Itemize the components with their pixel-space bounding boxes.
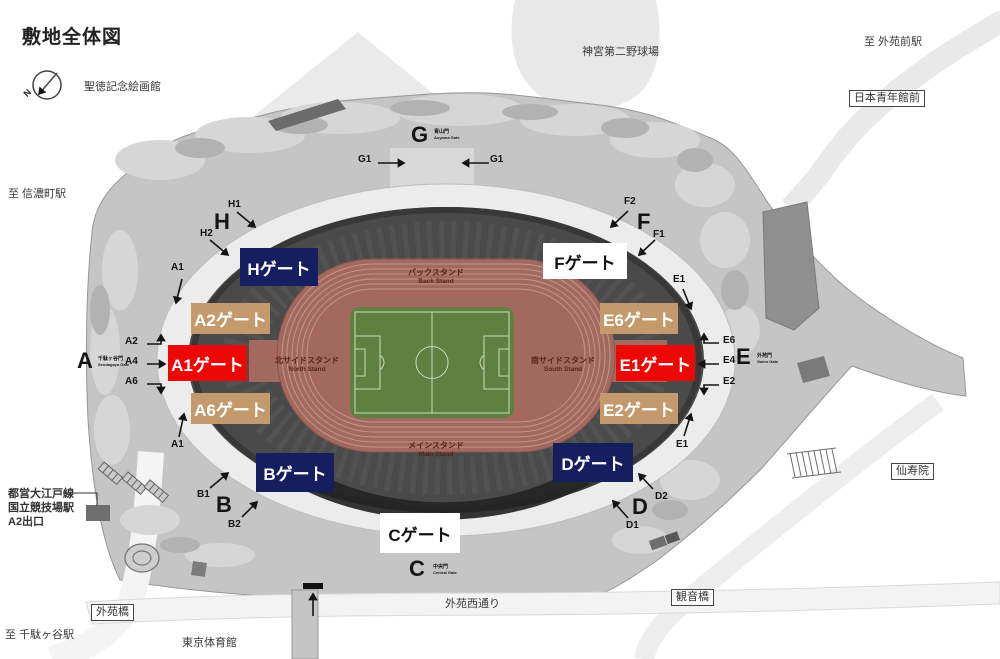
entrance-marker-d2: D2: [655, 492, 668, 502]
site-south-strip: [292, 590, 318, 659]
entrance-marker-e2: E2: [723, 377, 735, 387]
gate-box-e2: E2ゲート: [600, 393, 678, 424]
pond: [125, 544, 159, 572]
station-exit-block: [86, 505, 110, 521]
gate-letter-g: G: [411, 124, 428, 146]
landmark-tokyo-gymnasium: 東京体育館: [182, 634, 237, 650]
gate-box-h: Hゲート: [240, 248, 318, 286]
entrance-marker-h1: H1: [228, 200, 241, 210]
entrance-marker-f2: F2: [624, 197, 636, 207]
back-stand-label: バックスタンドBack Stand: [391, 268, 481, 286]
main-stand-label: メインスタンドMain Stand: [391, 441, 481, 459]
museum-label: 聖徳記念絵画館: [84, 78, 161, 94]
gate-box-d: Dゲート: [553, 443, 633, 482]
gate-name-g: 青山門Aoyama Gate: [434, 129, 460, 140]
entrance-marker-f1: F1: [653, 230, 665, 240]
entrance-marker-a2: A2: [125, 337, 138, 347]
landmark-senjuin: 仙寿院: [891, 463, 934, 480]
landmark-kannon-bridge: 観音橋: [671, 589, 714, 606]
gate-box-b: Bゲート: [256, 453, 334, 492]
entrance-marker-e1-top: E1: [673, 275, 685, 285]
gate-box-f: Fゲート: [543, 243, 627, 279]
gate-letter-d: D: [632, 496, 648, 518]
landmark-to-shinanomachi-station: 至 信濃町駅: [8, 185, 66, 201]
entrance-marker-b1: B1: [197, 490, 210, 500]
entrance-marker-e4: E4: [723, 356, 735, 366]
landmark-gaien-bridge: 外苑橋: [91, 604, 134, 621]
gate-name-e: 外苑門Gaien Gate: [757, 353, 778, 364]
landmark-to-gaienmae-station: 至 外苑前駅: [864, 33, 922, 49]
entrance-marker-e1-bottom: E1: [676, 440, 688, 450]
entrance-marker-h2: H2: [200, 229, 213, 239]
landmark-gaien-nishi-street: 外苑西通り: [445, 595, 500, 611]
gate-box-a2: A2ゲート: [191, 303, 270, 334]
entrance-marker-e6: E6: [723, 336, 735, 346]
oedo-station-name: 国立競技場駅: [8, 501, 74, 515]
gate-box-c: Cゲート: [380, 513, 460, 553]
gate-box-a1: A1ゲート: [168, 345, 247, 381]
landmark-nihon-seinenkan-mae: 日本青年館前: [849, 90, 925, 107]
landmark-oedo-line-station: 都営大江戸線 国立競技場駅 A2出口: [8, 487, 74, 529]
page-title: 敷地全体図: [22, 22, 122, 49]
gate-letter-a: A: [77, 350, 93, 372]
site-map: 敷地全体図 N 聖徳記念絵画館 神宮第二野球場 至 外苑前駅 日本青年館前 至 …: [0, 0, 1000, 659]
gate-box-e1: E1ゲート: [616, 345, 695, 381]
north-stand-label: 北サイドスタンドNorth Stand: [262, 356, 352, 374]
entrance-marker-a6: A6: [125, 377, 138, 387]
landmark-to-sendagaya-station: 至 千駄ヶ谷駅: [5, 626, 74, 642]
entrance-marker-g1-right: G1: [490, 155, 503, 165]
entrance-marker-a4: A4: [125, 357, 138, 367]
oedo-line-name: 都営大江戸線: [8, 487, 74, 501]
oedo-exit-name: A2出口: [8, 515, 74, 529]
south-stand-label: 南サイドスタンドSouth Stand: [518, 356, 608, 374]
gate-letter-b: B: [216, 494, 232, 516]
landmark-jingu-daini-ballpark: 神宮第二野球場: [582, 43, 659, 59]
entrance-marker-a1-top: A1: [171, 263, 184, 273]
gate-name-c: 中央門Central Gate: [433, 564, 457, 575]
structure-sw-small: [191, 561, 207, 577]
gate-box-e6: E6ゲート: [600, 303, 678, 334]
gate-letter-c: C: [409, 558, 425, 580]
entrance-marker-a1-bottom: A1: [171, 440, 184, 450]
entrance-marker-g1-left: G1: [358, 155, 371, 165]
entrance-marker-d1: D1: [626, 521, 639, 531]
gate-letter-e: E: [736, 346, 751, 368]
entrance-marker-b2: B2: [228, 520, 241, 530]
gate-letter-f: F: [637, 211, 650, 233]
gate-box-a6: A6ゲート: [191, 393, 270, 424]
gate-letter-h: H: [214, 211, 230, 233]
